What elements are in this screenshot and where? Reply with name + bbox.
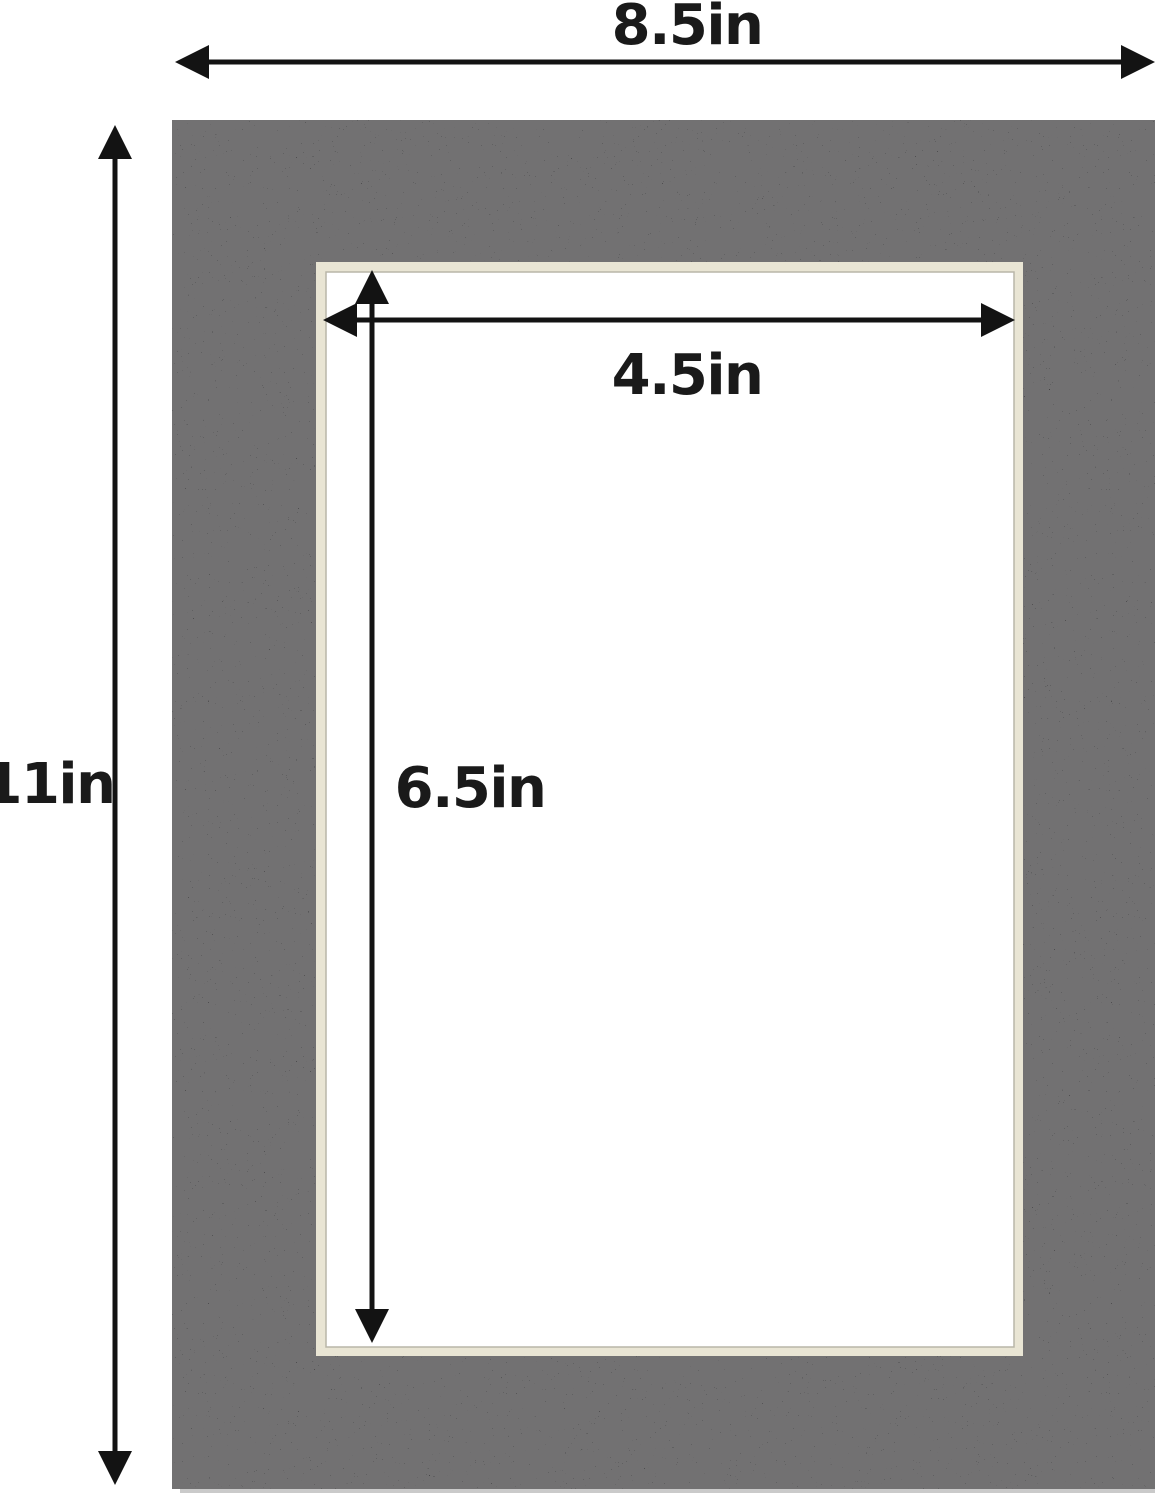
mat-bottom-shadow <box>180 1489 1155 1493</box>
opening-width-label: 4.5in <box>612 348 763 404</box>
outer-width-arrowhead-left <box>175 45 209 79</box>
opening-height-label: 6.5in <box>395 761 546 817</box>
outer-height-label: 11in <box>0 757 115 813</box>
outer-width-label: 8.5in <box>612 0 763 54</box>
outer-height-arrowhead-bottom <box>98 1451 132 1485</box>
outer-height-arrowhead-top <box>98 125 132 159</box>
outer-width-arrowhead-right <box>1121 45 1155 79</box>
product-dimension-diagram: 8.5in 11in 4.5in 6.5in <box>0 0 1166 1500</box>
diagram-canvas <box>0 0 1166 1500</box>
